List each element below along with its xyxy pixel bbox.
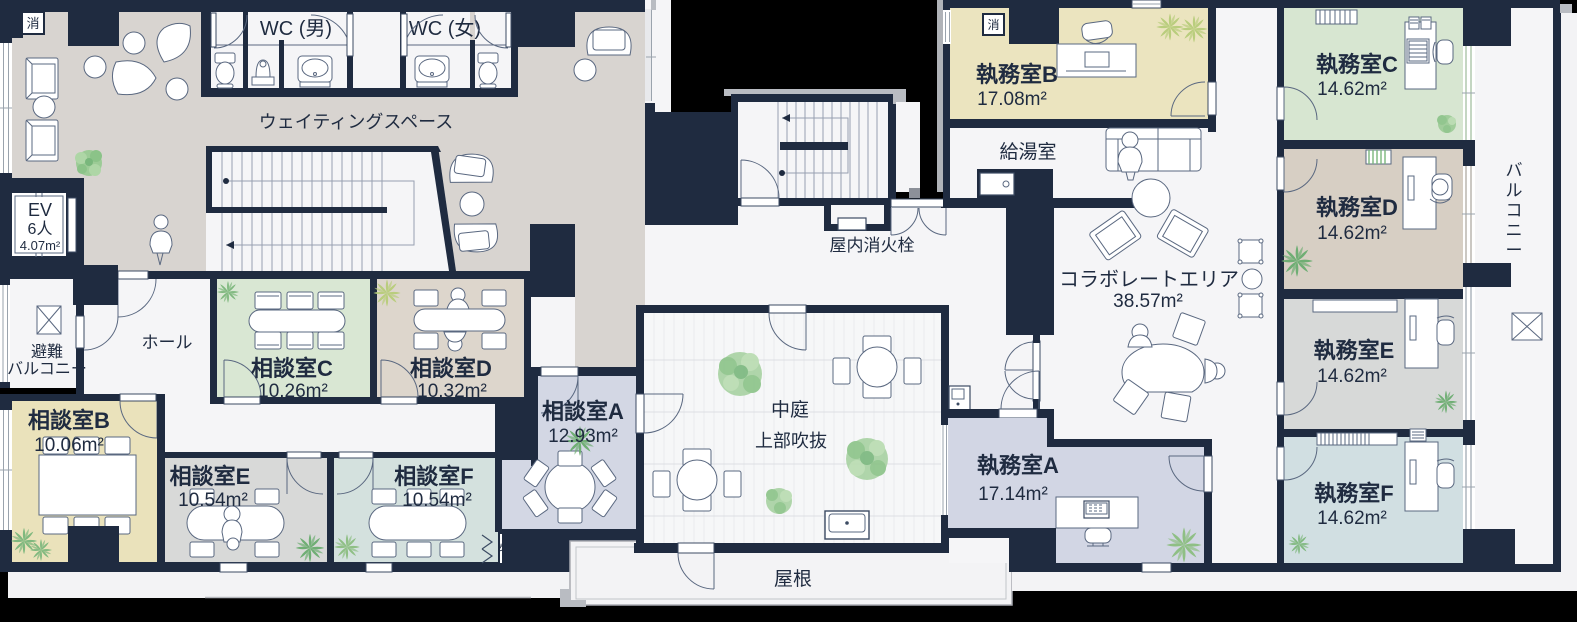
svg-text:ホール: ホール — [142, 333, 193, 352]
svg-text:10.26m²: 10.26m² — [258, 381, 328, 402]
svg-text:14.62m²: 14.62m² — [1317, 223, 1387, 244]
svg-text:避難: 避難 — [31, 343, 63, 361]
svg-text:バ: バ — [1506, 161, 1523, 180]
svg-text:コラボレートエリア: コラボレートエリア — [1059, 268, 1239, 291]
svg-text:執務室F: 執務室F — [1314, 481, 1393, 506]
svg-text:14.62m²: 14.62m² — [1317, 508, 1387, 529]
svg-text:10.32m²: 10.32m² — [417, 381, 487, 402]
svg-text:相談室C: 相談室C — [251, 356, 333, 381]
svg-text:WC (女): WC (女) — [409, 17, 481, 40]
svg-text:WC (男): WC (男) — [260, 18, 332, 40]
svg-text:10.06m²: 10.06m² — [34, 435, 104, 456]
svg-text:上部吹抜: 上部吹抜 — [755, 431, 827, 451]
svg-text:給湯室: 給湯室 — [999, 141, 1056, 163]
svg-text:中庭: 中庭 — [771, 399, 809, 421]
svg-text:14.62m²: 14.62m² — [1317, 79, 1387, 100]
svg-text:38.57m²: 38.57m² — [1113, 291, 1183, 312]
svg-text:コ: コ — [1506, 201, 1523, 220]
svg-text:執務室D: 執務室D — [1316, 195, 1398, 220]
svg-text:相談室D: 相談室D — [410, 356, 492, 381]
svg-text:屋根: 屋根 — [774, 568, 812, 590]
svg-text:相談室E: 相談室E — [170, 464, 251, 489]
svg-text:執務室E: 執務室E — [1314, 338, 1395, 363]
svg-text:バルコニー: バルコニー — [7, 361, 87, 378]
svg-text:ー: ー — [1506, 241, 1523, 260]
svg-text:ル: ル — [1506, 181, 1523, 200]
svg-text:6人: 6人 — [28, 220, 53, 238]
svg-text:12.93m²: 12.93m² — [548, 426, 618, 447]
svg-text:ニ: ニ — [1506, 221, 1523, 240]
svg-text:執務室A: 執務室A — [977, 453, 1059, 478]
svg-text:相談室A: 相談室A — [542, 399, 624, 424]
svg-text:執務室B: 執務室B — [976, 62, 1058, 87]
svg-text:ウェイティングスペース: ウェイティングスペース — [259, 112, 453, 132]
svg-text:EV: EV — [28, 200, 52, 220]
svg-text:相談室B: 相談室B — [28, 408, 110, 433]
svg-text:4.07m²: 4.07m² — [20, 238, 61, 253]
svg-text:10.54m²: 10.54m² — [178, 490, 248, 511]
svg-text:17.14m²: 17.14m² — [978, 484, 1048, 505]
svg-text:消: 消 — [26, 16, 39, 31]
svg-text:相談室F: 相談室F — [394, 464, 473, 489]
svg-text:執務室C: 執務室C — [1316, 52, 1398, 77]
svg-text:10.54m²: 10.54m² — [402, 490, 472, 511]
svg-text:屋内消火栓: 屋内消火栓 — [830, 236, 915, 255]
svg-text:消: 消 — [987, 18, 999, 32]
svg-text:14.62m²: 14.62m² — [1317, 366, 1387, 387]
svg-text:17.08m²: 17.08m² — [977, 89, 1047, 110]
